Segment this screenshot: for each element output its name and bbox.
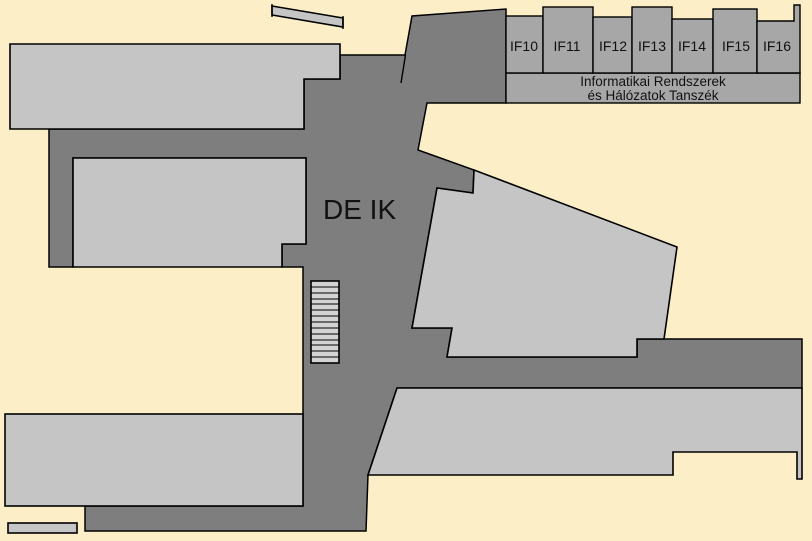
office-label-IF14: IF14 bbox=[678, 38, 706, 54]
office-label-IF10: IF10 bbox=[510, 38, 538, 54]
department-label-line1: Informatikai Rendszerek bbox=[580, 74, 726, 89]
room-southwest bbox=[5, 414, 303, 506]
department-label-line2: és Hálózatok Tanszék bbox=[587, 88, 718, 103]
room-west bbox=[73, 158, 306, 267]
room-northwest bbox=[10, 44, 340, 129]
office-label-IF12: IF12 bbox=[599, 38, 627, 54]
exterior-bar bbox=[8, 523, 77, 533]
floor-plan-canvas: DE IK IF10 IF11 IF12 IF13 IF14 IF15 IF16… bbox=[0, 0, 812, 541]
office-label-IF16: IF16 bbox=[763, 38, 791, 54]
office-label-IF15: IF15 bbox=[722, 38, 750, 54]
staircase bbox=[311, 281, 339, 363]
building-label: DE IK bbox=[323, 194, 396, 225]
office-label-IF11: IF11 bbox=[554, 38, 581, 54]
office-label-IF13: IF13 bbox=[638, 38, 666, 54]
floor-plan: DE IK IF10 IF11 IF12 IF13 IF14 IF15 IF16… bbox=[0, 0, 812, 541]
